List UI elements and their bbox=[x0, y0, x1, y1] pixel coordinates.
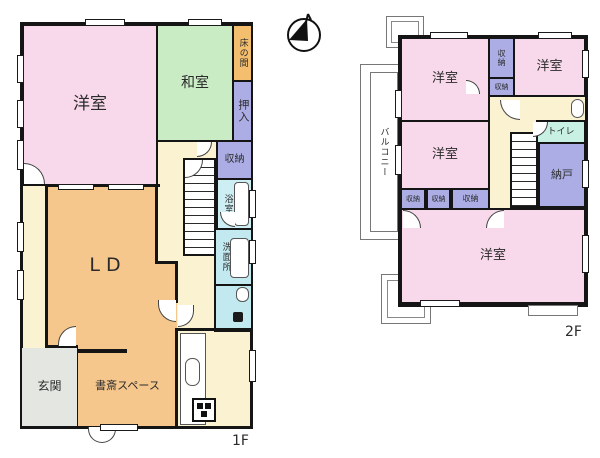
room-label: 収納 bbox=[432, 195, 446, 203]
toilet-icon bbox=[233, 312, 243, 322]
window bbox=[430, 32, 468, 39]
wall bbox=[175, 328, 178, 426]
room-youshitsu-nw-2f: 洋室 bbox=[400, 37, 490, 122]
room-genkan-1f: 玄関 bbox=[22, 348, 77, 426]
window bbox=[17, 222, 24, 252]
floor1-label: 1F bbox=[232, 433, 249, 449]
room-label-ld: LD bbox=[60, 250, 150, 280]
room-washitsu-1f: 和室 bbox=[156, 24, 234, 142]
window bbox=[108, 184, 144, 190]
wall bbox=[45, 184, 48, 348]
window bbox=[17, 100, 24, 128]
window bbox=[582, 160, 589, 188]
kitchen-sink-icon bbox=[185, 358, 200, 386]
room-label: 和室 bbox=[181, 75, 209, 91]
window bbox=[395, 145, 402, 175]
bathtub-icon bbox=[234, 182, 249, 226]
floor-plan-canvas: 洋室 和室 床の間 押入 収納 浴室 洗面所 LD 書斎スペース bbox=[0, 0, 600, 458]
north-compass-icon bbox=[281, 9, 327, 57]
room-label: 押入 bbox=[236, 99, 249, 123]
room-label-shosai: 書斎スペース bbox=[80, 375, 175, 395]
window bbox=[58, 184, 94, 190]
window bbox=[100, 424, 138, 431]
room-label: 収納 bbox=[497, 49, 506, 67]
window bbox=[249, 240, 256, 264]
room-label: 洋室 bbox=[536, 60, 562, 75]
wall bbox=[155, 184, 158, 264]
window bbox=[17, 140, 24, 170]
room-shuunou-b-2f: 収納 bbox=[426, 188, 451, 210]
room-label: 洋室 bbox=[432, 148, 458, 163]
room-youshitsu-1f: 洋室 bbox=[22, 24, 158, 186]
window bbox=[249, 190, 256, 218]
window bbox=[420, 300, 460, 307]
room-label: バルコニー bbox=[378, 127, 391, 177]
room-youshitsu-ne-2f: 洋室 bbox=[513, 37, 586, 97]
window bbox=[188, 19, 222, 26]
stove-icon bbox=[192, 398, 216, 422]
room-label: 収納 bbox=[406, 195, 420, 203]
room-label: 洋室 bbox=[432, 72, 458, 87]
room-label: 浴室 bbox=[222, 194, 232, 214]
window bbox=[538, 32, 572, 39]
room-label: 洋室 bbox=[480, 249, 506, 264]
balcony-2f: バルコニー bbox=[370, 72, 398, 232]
window bbox=[582, 50, 589, 78]
room-label: 収納 bbox=[225, 154, 245, 166]
room-label: 床の間 bbox=[237, 38, 247, 68]
room-tokonoma-1f: 床の間 bbox=[232, 24, 253, 82]
washbasin-icon-2f bbox=[571, 99, 584, 118]
room-shuunou-tall-2f: 収納 bbox=[488, 37, 515, 79]
window bbox=[17, 55, 24, 83]
room-shuunou-a-2f: 収納 bbox=[400, 188, 426, 210]
room-label: トイレ bbox=[547, 127, 574, 137]
wall bbox=[175, 328, 253, 331]
room-label: 収納 bbox=[463, 194, 479, 203]
wall bbox=[175, 261, 178, 303]
room-nando-2f: 納戸 bbox=[538, 142, 586, 208]
room-shuunou-small-2f: 収納 bbox=[488, 77, 515, 97]
room-label: 収納 bbox=[495, 83, 509, 91]
floor2-label: 2F bbox=[565, 324, 582, 340]
window bbox=[582, 235, 589, 273]
room-shuunou-1f: 収納 bbox=[216, 140, 253, 180]
room-youshitsu-mid-2f: 洋室 bbox=[400, 120, 490, 190]
room-label: 玄関 bbox=[37, 380, 61, 394]
balcony-step bbox=[528, 305, 578, 316]
wall-stub bbox=[75, 349, 127, 353]
room-oshiire-1f: 押入 bbox=[232, 80, 253, 142]
stairs-2f bbox=[510, 132, 538, 208]
window bbox=[395, 90, 402, 118]
window bbox=[249, 350, 256, 382]
room-shuunou-c-2f: 収納 bbox=[451, 188, 490, 210]
toilet-tank-icon bbox=[236, 287, 249, 302]
room-label: 洋室 bbox=[73, 95, 107, 115]
window bbox=[85, 19, 125, 26]
washbasin-icon bbox=[230, 238, 249, 278]
room-label: 納戸 bbox=[551, 169, 573, 182]
window bbox=[17, 270, 24, 300]
